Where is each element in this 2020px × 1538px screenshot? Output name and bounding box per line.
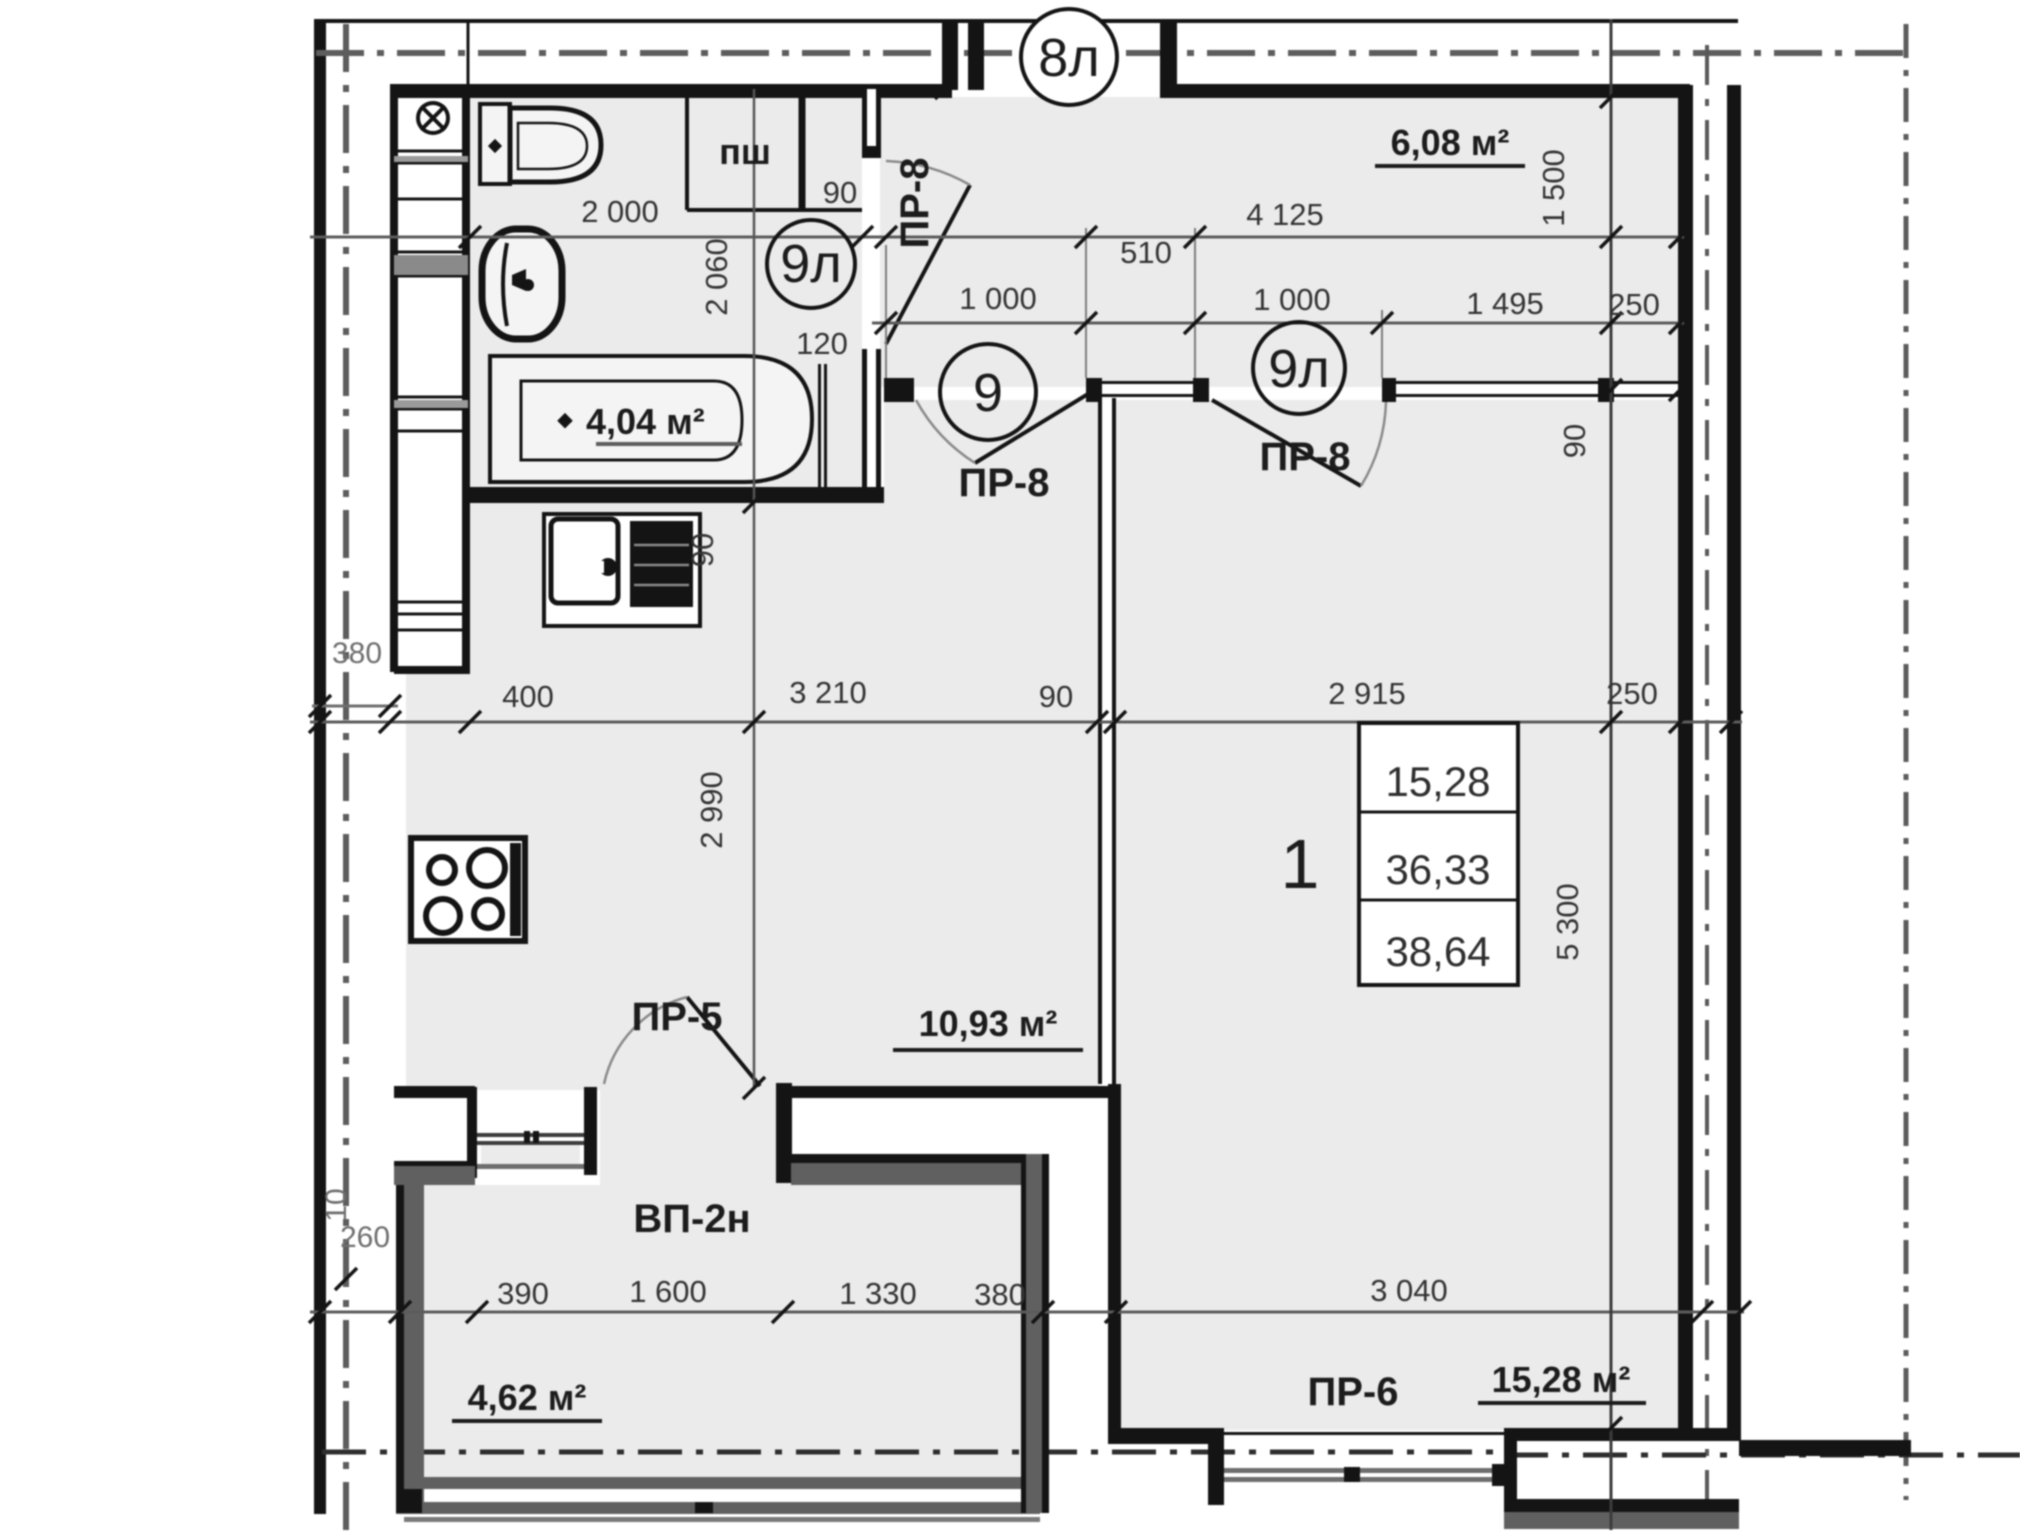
svg-text:400: 400 xyxy=(502,679,554,714)
svg-text:4 125: 4 125 xyxy=(1246,197,1324,232)
svg-text:1 000: 1 000 xyxy=(959,281,1037,316)
svg-text:9л: 9л xyxy=(1268,339,1330,399)
svg-text:380: 380 xyxy=(974,1277,1026,1312)
svg-text:260: 260 xyxy=(340,1221,390,1254)
svg-text:2 915: 2 915 xyxy=(1328,676,1406,711)
svg-text:пш: пш xyxy=(719,131,771,172)
svg-text:1: 1 xyxy=(1281,825,1320,903)
svg-text:ПР-5: ПР-5 xyxy=(632,995,723,1039)
svg-text:15,28: 15,28 xyxy=(1385,758,1490,805)
svg-text:380: 380 xyxy=(332,637,382,670)
svg-text:10,93 м²: 10,93 м² xyxy=(919,1003,1058,1044)
svg-text:390: 390 xyxy=(497,1276,549,1311)
svg-text:250: 250 xyxy=(1608,287,1660,322)
svg-text:90: 90 xyxy=(823,175,857,210)
svg-text:90: 90 xyxy=(1039,679,1073,714)
svg-text:90: 90 xyxy=(685,533,720,567)
svg-text:10: 10 xyxy=(320,1188,353,1221)
svg-text:ПР-6: ПР-6 xyxy=(1308,1370,1399,1414)
svg-text:1 495: 1 495 xyxy=(1466,286,1544,321)
svg-text:36,33: 36,33 xyxy=(1385,846,1490,893)
svg-text:2 000: 2 000 xyxy=(581,194,659,229)
svg-text:4,62 м²: 4,62 м² xyxy=(468,1377,587,1418)
svg-text:38,64: 38,64 xyxy=(1385,928,1490,975)
svg-text:1 500: 1 500 xyxy=(1536,149,1571,227)
svg-text:3 210: 3 210 xyxy=(789,675,867,710)
svg-text:2 060: 2 060 xyxy=(699,238,734,316)
svg-text:90: 90 xyxy=(1557,424,1592,458)
svg-text:8л: 8л xyxy=(1038,28,1100,88)
svg-text:9: 9 xyxy=(973,363,1003,423)
svg-text:ПР-8: ПР-8 xyxy=(959,461,1050,505)
svg-text:1 330: 1 330 xyxy=(839,1276,917,1311)
svg-text:250: 250 xyxy=(1606,676,1658,711)
svg-text:9л: 9л xyxy=(780,234,842,294)
svg-text:6,08 м²: 6,08 м² xyxy=(1391,122,1510,163)
svg-text:3 040: 3 040 xyxy=(1370,1273,1448,1308)
svg-text:ПР-8: ПР-8 xyxy=(893,158,937,249)
svg-text:510: 510 xyxy=(1120,235,1172,270)
svg-text:1 600: 1 600 xyxy=(629,1274,707,1309)
svg-text:2 990: 2 990 xyxy=(694,771,729,849)
svg-text:ВП-2н: ВП-2н xyxy=(633,1197,750,1241)
svg-text:120: 120 xyxy=(796,326,848,361)
svg-text:15,28 м²: 15,28 м² xyxy=(1492,1359,1631,1400)
svg-text:4,04 м²: 4,04 м² xyxy=(586,401,705,442)
svg-text:1 000: 1 000 xyxy=(1253,282,1331,317)
svg-text:ПР-8: ПР-8 xyxy=(1260,435,1351,479)
svg-text:5 300: 5 300 xyxy=(1550,883,1585,961)
